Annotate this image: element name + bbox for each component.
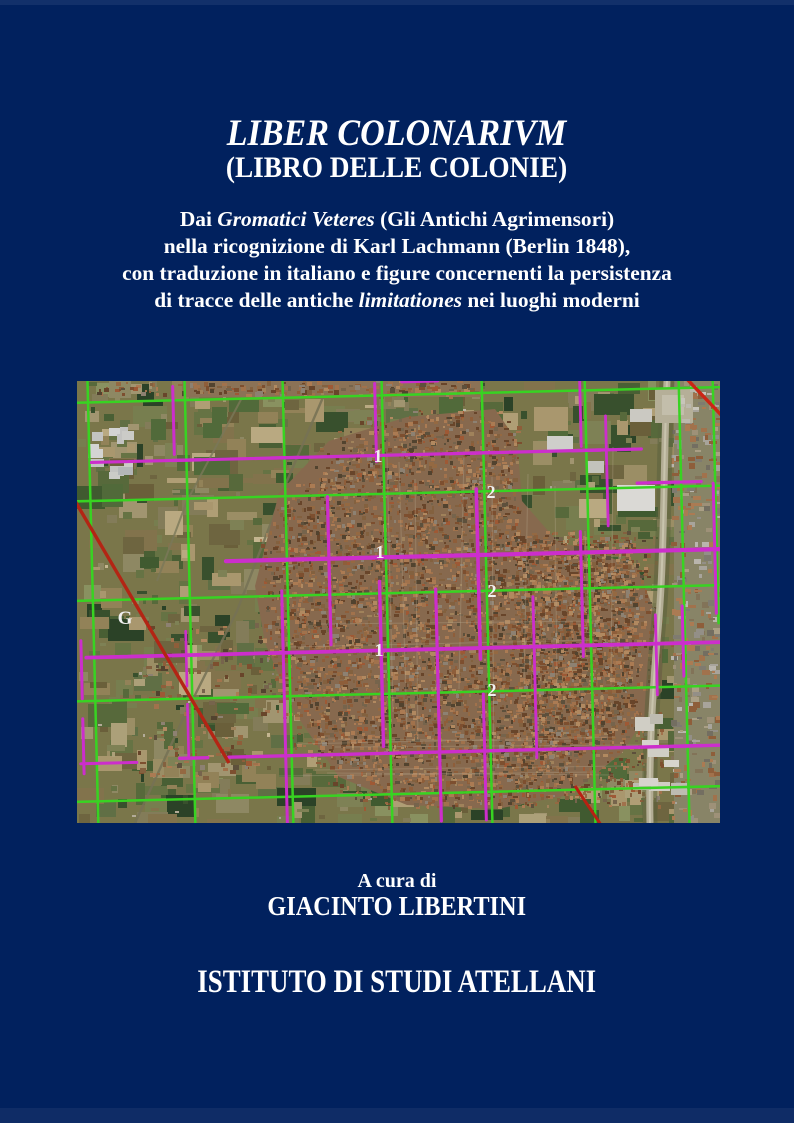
svg-text:2: 2 xyxy=(488,581,497,601)
svg-text:G: G xyxy=(118,608,133,629)
svg-text:1: 1 xyxy=(376,542,385,562)
svg-text:1: 1 xyxy=(374,446,383,466)
svg-text:2: 2 xyxy=(487,482,496,502)
svg-text:1: 1 xyxy=(375,640,384,660)
svg-text:2: 2 xyxy=(488,680,497,700)
